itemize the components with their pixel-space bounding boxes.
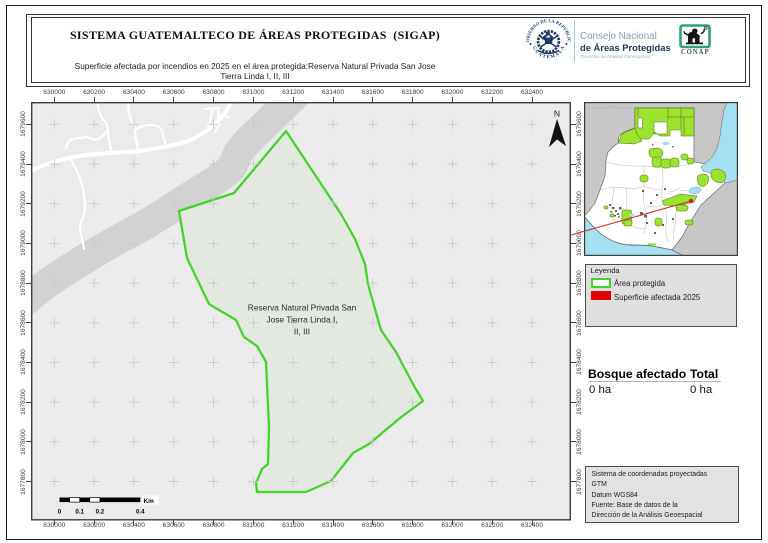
svg-text:Reserva Natural Privada San: Reserva Natural Privada San <box>248 303 357 313</box>
svg-text:II, III: II, III <box>294 327 310 337</box>
svg-text:0.4: 0.4 <box>136 509 145 516</box>
svg-text:G U A T E M A L A: G U A T E M A L A <box>531 45 567 60</box>
svg-text:N: N <box>554 109 560 119</box>
svg-text:0.1: 0.1 <box>75 509 84 516</box>
svg-text:Jose Tierra Linda I,: Jose Tierra Linda I, <box>266 315 337 325</box>
svg-text:Km: Km <box>144 498 155 505</box>
svg-text:0: 0 <box>58 509 62 516</box>
svg-text:CONAP: CONAP <box>681 49 710 56</box>
svg-text:0.2: 0.2 <box>96 509 105 516</box>
